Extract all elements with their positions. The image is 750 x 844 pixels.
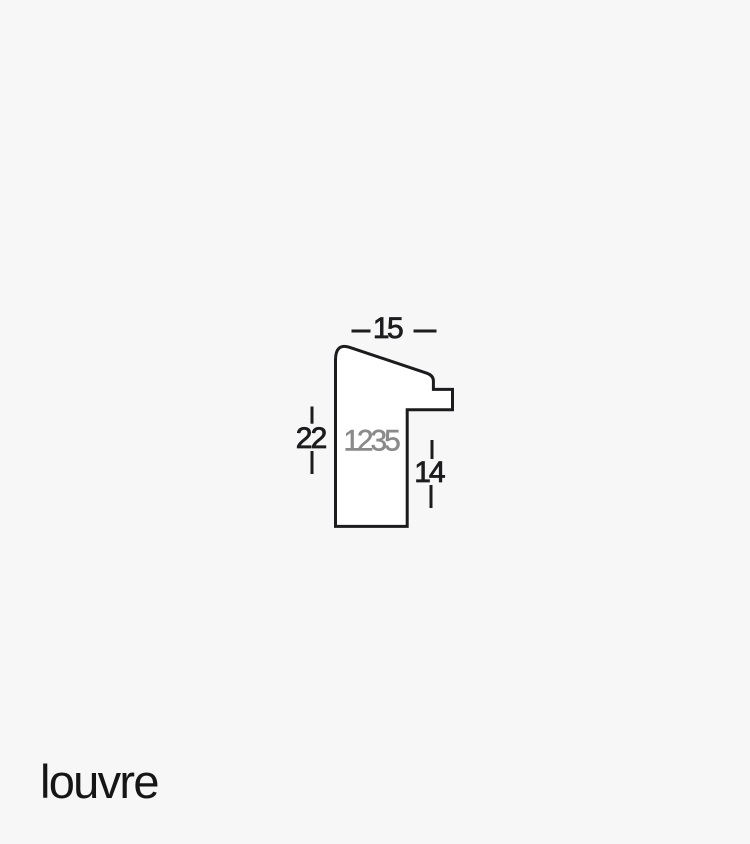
svg-text:1235: 1235 [343,424,400,457]
svg-text:14: 14 [414,456,445,489]
svg-text:15: 15 [373,312,403,345]
svg-text:22: 22 [296,422,327,455]
